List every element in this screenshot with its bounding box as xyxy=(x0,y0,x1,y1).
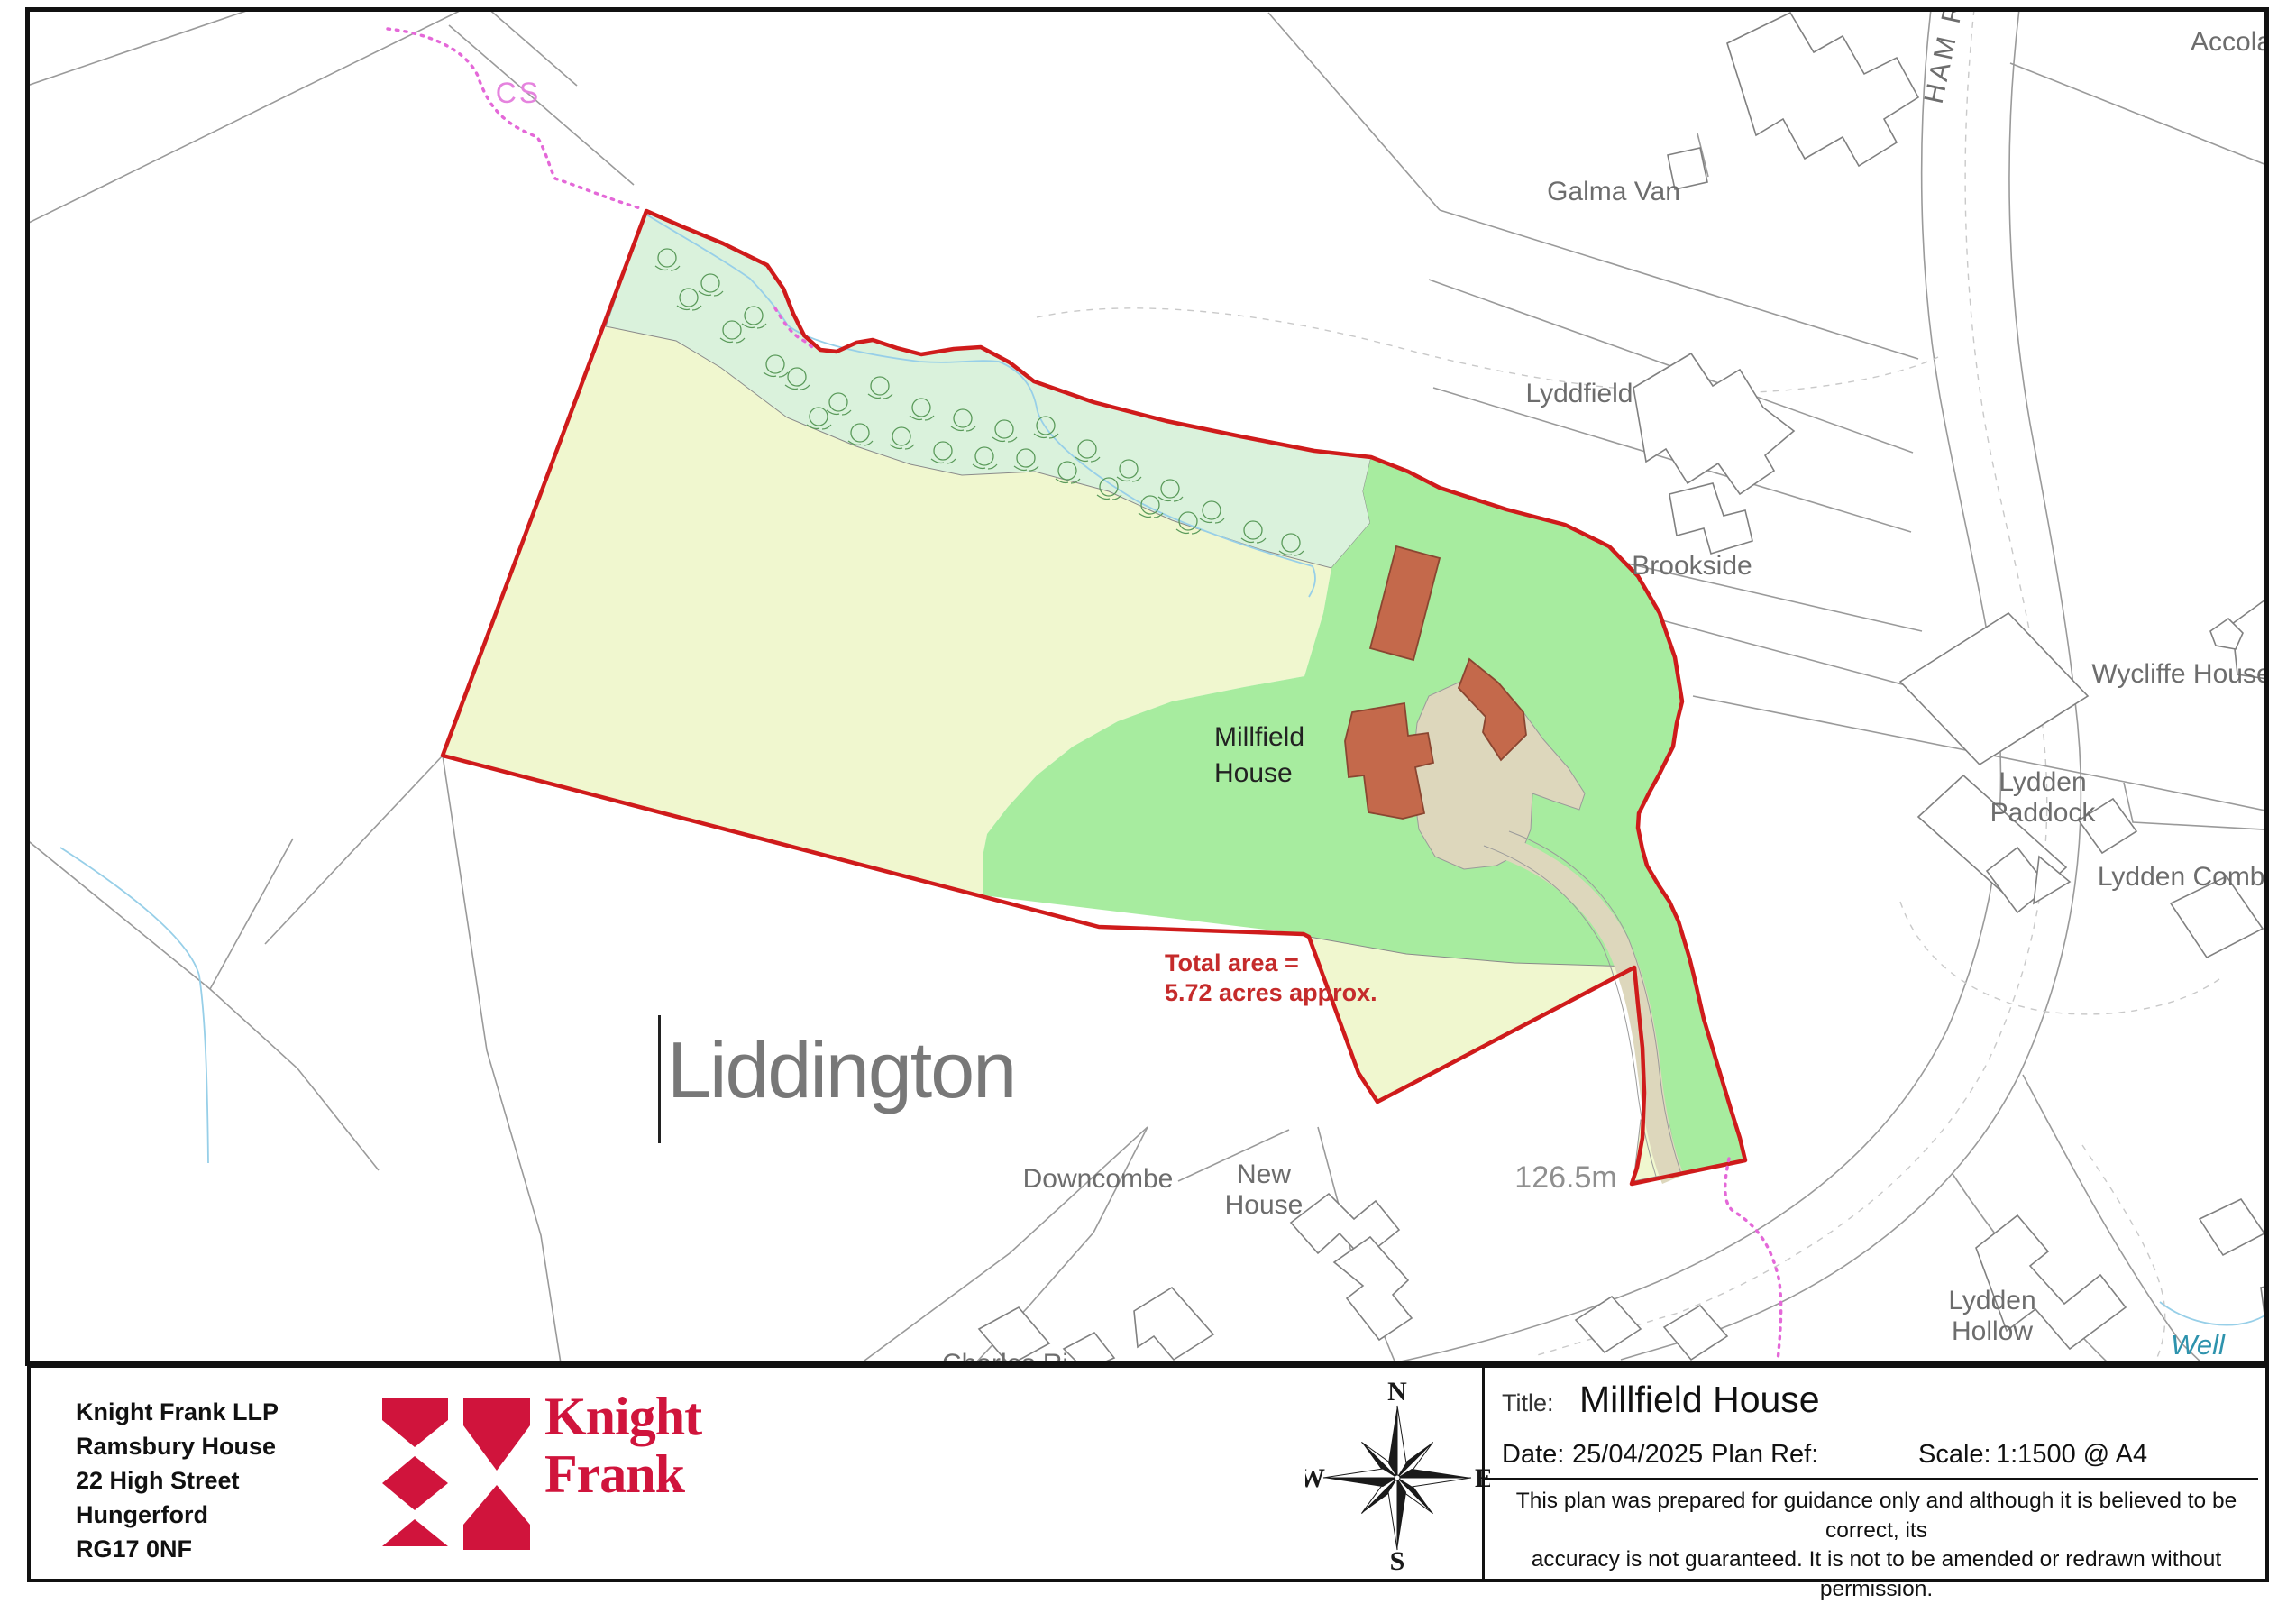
label-wycliffe-house: Wycliffe House xyxy=(2091,659,2269,690)
label-millfield-line2: House xyxy=(1214,758,1293,788)
scale-label: Scale: xyxy=(1918,1440,1991,1470)
compass-north-label: N xyxy=(1387,1380,1407,1407)
label-total-area: Total area =5.72 acres approx. xyxy=(1165,949,1377,1008)
label-lyddfield: Lyddfield xyxy=(1526,379,1633,409)
label-liddington: Liddington xyxy=(667,1030,1015,1111)
label-lydden-paddock: LyddenPaddock xyxy=(1990,767,2096,829)
label-brookside: Brookside xyxy=(1632,551,1752,582)
label-downcombe: Downcombe xyxy=(1023,1164,1174,1195)
compass-south-label: S xyxy=(1390,1546,1405,1574)
address-line: Hungerford xyxy=(76,1498,279,1532)
wordmark-line1: Knight xyxy=(544,1388,701,1445)
title-block: Knight Frank LLP Ramsbury House 22 High … xyxy=(27,1364,2269,1582)
label-lydden-hollow-line1: Lydden xyxy=(1948,1286,2035,1315)
disclaimer-line2: accuracy is not guaranteed. It is not to… xyxy=(1491,1545,2262,1604)
disclaimer-line1: This plan was prepared for guidance only… xyxy=(1491,1487,2262,1545)
label-millfield-house: MillfieldHouse xyxy=(1214,720,1304,792)
label-new-house-line1: New xyxy=(1237,1159,1291,1189)
label-lydden-combe: Lydden Combe xyxy=(2098,862,2269,893)
map-drawing xyxy=(25,7,2269,1366)
label-lydden-hollow: LyddenHollow xyxy=(1948,1286,2035,1347)
address-line: 22 High Street xyxy=(76,1463,279,1498)
disclaimer-text: This plan was prepared for guidance only… xyxy=(1491,1487,2262,1604)
compass-west-label: W xyxy=(1305,1463,1325,1493)
address-line: Ramsbury House xyxy=(76,1429,279,1463)
label-spot-height: 126.5m xyxy=(1514,1162,1616,1193)
liddington-marker-bar xyxy=(658,1015,661,1143)
titleblock-horizontal-divider xyxy=(1485,1478,2258,1480)
label-lydden-hollow-line2: Hollow xyxy=(1952,1316,2033,1346)
titleblock-vertical-divider xyxy=(1482,1368,1485,1579)
plan-ref-label: Plan Ref: xyxy=(1711,1440,1818,1470)
knight-frank-wordmark: Knight Frank xyxy=(544,1388,701,1503)
label-lydden-paddock-line1: Lydden xyxy=(1999,767,2086,797)
label-well: Well xyxy=(2171,1330,2225,1361)
label-new-house: NewHouse xyxy=(1225,1159,1304,1221)
label-lydden-paddock-line2: Paddock xyxy=(1990,798,2096,828)
address-line: Knight Frank LLP xyxy=(76,1395,279,1429)
scale-value: 1:1500 @ A4 xyxy=(1996,1440,2147,1470)
label-cs: CS xyxy=(496,78,541,108)
map-area: CS Galma Van Lyddfield Brookside Accolad… xyxy=(25,7,2269,1366)
label-new-house-line2: House xyxy=(1225,1190,1304,1220)
wordmark-line2: Frank xyxy=(544,1445,701,1503)
date-value: 25/04/2025 xyxy=(1572,1440,1703,1470)
label-total-area-line2: 5.72 acres approx. xyxy=(1165,979,1377,1006)
plan-page: CS Galma Van Lyddfield Brookside Accolad… xyxy=(0,0,2296,1604)
compass-rose-icon: N E S W xyxy=(1305,1380,1490,1574)
label-millfield-line1: Millfield xyxy=(1214,722,1304,752)
label-total-area-line1: Total area = xyxy=(1165,949,1299,976)
map-canvas: CS Galma Van Lyddfield Brookside Accolad… xyxy=(25,7,2269,1366)
label-galma-van: Galma Van xyxy=(1547,177,1680,207)
address-block: Knight Frank LLP Ramsbury House 22 High … xyxy=(76,1395,279,1566)
title-label: Title: xyxy=(1502,1389,1554,1417)
knight-frank-logo-icon xyxy=(382,1398,530,1550)
label-accolade: Accolade xyxy=(2191,27,2269,58)
address-line: RG17 0NF xyxy=(76,1532,279,1566)
date-label: Date: xyxy=(1502,1440,1564,1470)
title-value: Millfield House xyxy=(1579,1379,1820,1421)
